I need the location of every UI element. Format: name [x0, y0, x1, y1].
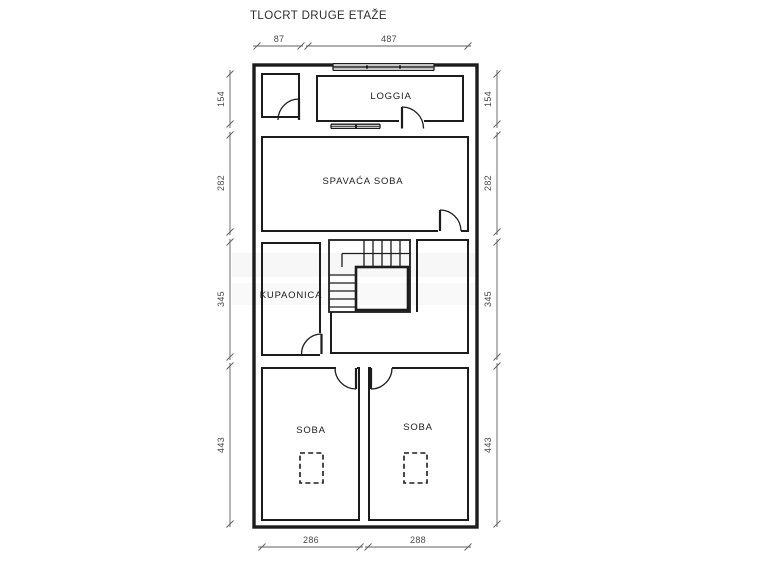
room-label-left: SOBA — [296, 425, 326, 436]
dim-right-443: 443 — [483, 437, 493, 453]
room-right-walls — [369, 368, 468, 520]
room-right-door — [371, 368, 392, 389]
dim-left-282: 282 — [216, 175, 226, 191]
dim-bottom-286: 286 — [303, 535, 319, 545]
dim-left-443: 443 — [216, 437, 226, 453]
loggia-door — [402, 107, 424, 129]
room-left-walls — [262, 368, 359, 520]
floor-plan-canvas: TLOCRT DRUGE ETAŽE 87 487 286 288 — [0, 0, 758, 564]
room-label-bedroom: SPAVAĆA SOBA — [323, 176, 404, 187]
dim-left-154: 154 — [216, 91, 226, 107]
room-left-door — [335, 368, 356, 389]
dim-left-345: 345 — [216, 291, 226, 307]
dim-right-345: 345 — [483, 291, 493, 307]
dashed-symbol-left — [300, 453, 323, 483]
loggia-top-window — [333, 62, 434, 71]
dashed-symbol-right — [404, 453, 427, 483]
room-label-bathroom: KUPAONICA — [260, 290, 322, 301]
bedroom-door — [440, 210, 461, 231]
dim-top-87: 87 — [274, 34, 285, 44]
dim-right-154: 154 — [483, 91, 493, 107]
drawing-title: TLOCRT DRUGE ETAŽE — [250, 9, 387, 22]
dim-top-487: 487 — [381, 34, 397, 44]
dimension-left: 154 282 345 443 — [216, 70, 234, 528]
dimension-bottom: 286 288 — [258, 535, 472, 551]
bathroom-door — [302, 334, 322, 354]
room-label-right: SOBA — [403, 422, 433, 433]
loggia-inner-window — [331, 124, 380, 129]
floor-plan-page: TLOCRT DRUGE ETAŽE 87 487 286 288 — [0, 0, 758, 564]
dimension-top: 87 487 — [253, 34, 472, 50]
room-label-loggia: LOGGIA — [370, 91, 411, 102]
dim-right-282: 282 — [483, 175, 493, 191]
dimension-right: 154 282 345 443 — [483, 70, 501, 528]
dim-bottom-288: 288 — [410, 535, 426, 545]
